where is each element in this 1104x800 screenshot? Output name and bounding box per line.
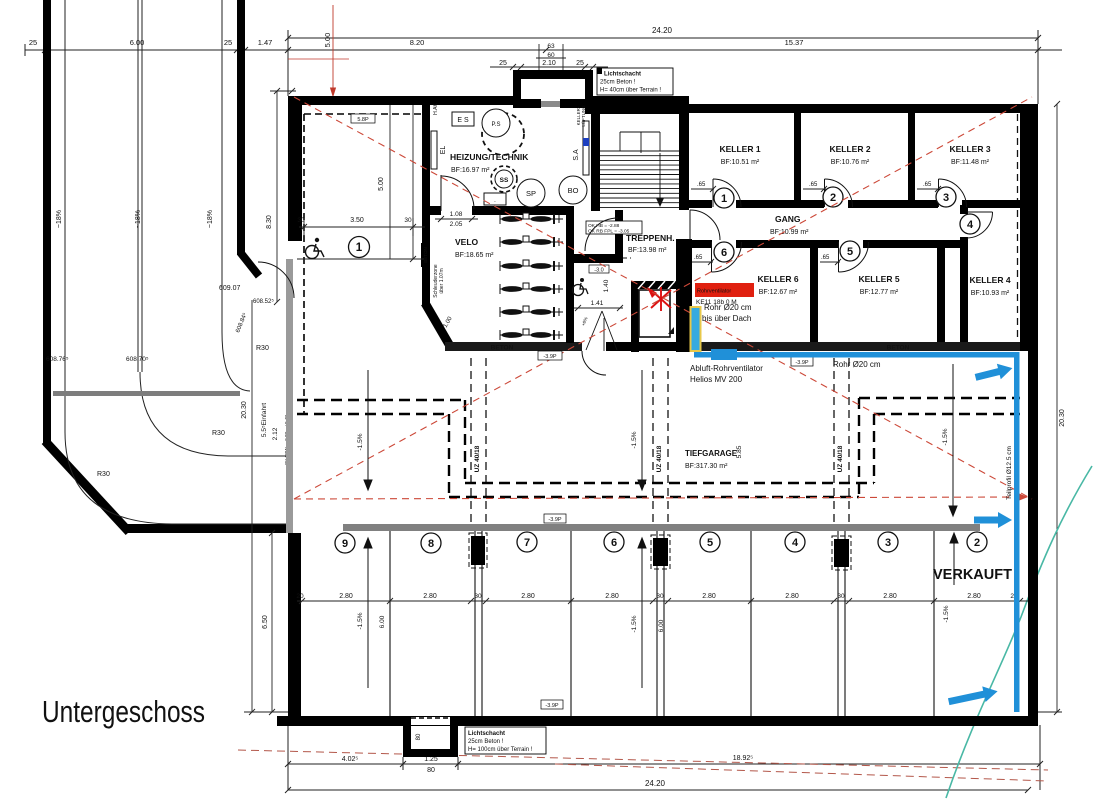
svg-text:-1.5%: -1.5% bbox=[631, 615, 638, 632]
svg-text:BF:317.30 m²: BF:317.30 m² bbox=[685, 463, 728, 470]
svg-text:4: 4 bbox=[792, 537, 799, 549]
svg-text:UZ 40/18: UZ 40/18 bbox=[656, 445, 663, 472]
svg-text:KELLER 2: KELLER 2 bbox=[829, 144, 870, 154]
svg-text:BF:10.99 m²: BF:10.99 m² bbox=[770, 229, 809, 236]
svg-text:-3.9P: -3.9P bbox=[795, 360, 808, 366]
svg-text:-1.5%: -1.5% bbox=[357, 612, 364, 629]
svg-text:BF:12.67 m²: BF:12.67 m² bbox=[759, 289, 798, 296]
svg-text:KELLER 6: KELLER 6 bbox=[757, 274, 798, 284]
svg-text:KELLER 3: KELLER 3 bbox=[949, 144, 990, 154]
svg-text:2.80: 2.80 bbox=[423, 593, 437, 600]
svg-text:25: 25 bbox=[576, 60, 584, 67]
svg-text:R30: R30 bbox=[212, 430, 225, 437]
svg-text:-3.9P: -3.9P bbox=[545, 703, 558, 709]
svg-text:20: 20 bbox=[296, 593, 304, 600]
svg-text:H.AK: H.AK bbox=[433, 103, 439, 115]
svg-text:.65: .65 bbox=[697, 182, 706, 188]
svg-text:OK RB FPL = -3.05: OK RB FPL = -3.05 bbox=[588, 229, 630, 235]
svg-text:5.00: 5.00 bbox=[378, 177, 385, 191]
svg-text:VELO: VELO bbox=[455, 237, 479, 247]
svg-text:Lichtschacht: Lichtschacht bbox=[468, 731, 505, 737]
svg-text:6.00: 6.00 bbox=[658, 619, 665, 632]
svg-text:8: 8 bbox=[428, 538, 434, 550]
svg-text:5: 5 bbox=[847, 246, 853, 258]
svg-text:2.05: 2.05 bbox=[450, 221, 463, 228]
svg-text:25: 25 bbox=[29, 38, 37, 47]
svg-text:BF:11.48 m²: BF:11.48 m² bbox=[951, 159, 990, 166]
svg-text:Teilprofil Ø12.5 cm: Teilprofil Ø12.5 cm bbox=[1006, 446, 1013, 500]
svg-text:3.50: 3.50 bbox=[350, 217, 364, 224]
svg-text:BF:10.76 m²: BF:10.76 m² bbox=[831, 159, 870, 166]
svg-text:BETON: BETON bbox=[887, 345, 910, 352]
svg-text:BF:10.93 m²: BF:10.93 m² bbox=[971, 290, 1010, 297]
svg-text:1.41: 1.41 bbox=[591, 300, 604, 307]
svg-text:~18%: ~18% bbox=[135, 210, 142, 228]
svg-text:5.5⁵Einfahrt: 5.5⁵Einfahrt bbox=[261, 403, 268, 437]
svg-text:609.07: 609.07 bbox=[219, 285, 241, 292]
svg-text:BETON: BETON bbox=[491, 345, 514, 352]
svg-text:2.80: 2.80 bbox=[883, 593, 897, 600]
svg-text:24.20: 24.20 bbox=[652, 26, 673, 35]
svg-text:60: 60 bbox=[547, 52, 555, 59]
svg-text:3: 3 bbox=[943, 192, 949, 204]
svg-text:H= 100cm über Terrain !: H= 100cm über Terrain ! bbox=[468, 747, 533, 753]
svg-text:1.08: 1.08 bbox=[450, 211, 463, 218]
svg-text:4: 4 bbox=[967, 219, 974, 231]
svg-text:-1.5%: -1.5% bbox=[943, 605, 950, 622]
svg-text:2.80: 2.80 bbox=[967, 593, 981, 600]
svg-text:-1.5%: -1.5% bbox=[942, 428, 949, 445]
svg-text:30: 30 bbox=[297, 217, 305, 224]
svg-text:2: 2 bbox=[830, 192, 836, 204]
svg-text:LÜFTUNG: LÜFTUNG bbox=[580, 105, 586, 127]
svg-text:24.20: 24.20 bbox=[645, 779, 666, 788]
svg-text:.65: .65 bbox=[809, 182, 818, 188]
svg-text:bis über Dach: bis über Dach bbox=[702, 314, 751, 323]
svg-text:VERKAUFT: VERKAUFT bbox=[933, 567, 1012, 583]
svg-text:HEIZUNG/TECHNIK: HEIZUNG/TECHNIK bbox=[450, 152, 529, 162]
svg-text:BF:18.65 m²: BF:18.65 m² bbox=[455, 252, 494, 259]
svg-text:7: 7 bbox=[524, 537, 530, 549]
svg-text:5.85: 5.85 bbox=[736, 445, 743, 458]
svg-text:Untergeschoss: Untergeschoss bbox=[42, 694, 205, 729]
svg-text:BF:13.98 m²: BF:13.98 m² bbox=[628, 247, 667, 254]
svg-text:-3.9P: -3.9P bbox=[548, 517, 561, 523]
svg-text:-3.9P: -3.9P bbox=[543, 354, 556, 360]
svg-text:4.02⁵: 4.02⁵ bbox=[342, 756, 359, 763]
svg-text:63: 63 bbox=[547, 43, 555, 50]
svg-text:25cm Beton !: 25cm Beton ! bbox=[600, 80, 636, 86]
svg-text:80: 80 bbox=[427, 767, 435, 774]
svg-text:6.50: 6.50 bbox=[262, 615, 269, 629]
svg-text:25: 25 bbox=[499, 60, 507, 67]
svg-text:6: 6 bbox=[611, 537, 617, 549]
svg-text:Rohr Ø20 cm: Rohr Ø20 cm bbox=[704, 303, 752, 312]
svg-text:OK HB = -2.88: OK HB = -2.88 bbox=[588, 223, 620, 229]
svg-text:~18%: ~18% bbox=[207, 210, 214, 228]
svg-text:25cm Beton !: 25cm Beton ! bbox=[468, 739, 504, 745]
svg-text:S.A: S.A bbox=[573, 149, 580, 161]
svg-text:6.00: 6.00 bbox=[379, 615, 386, 628]
svg-text:20.30: 20.30 bbox=[241, 401, 248, 419]
svg-text:Abluft-Rohrventilator: Abluft-Rohrventilator bbox=[690, 364, 763, 373]
svg-text:~18%: ~18% bbox=[56, 210, 63, 228]
svg-text:1.25: 1.25 bbox=[424, 756, 438, 763]
svg-text:30: 30 bbox=[656, 593, 664, 600]
svg-text:1: 1 bbox=[356, 242, 363, 254]
svg-text:GANG: GANG bbox=[775, 214, 801, 224]
svg-text:Rohr Ø20 cm: Rohr Ø20 cm bbox=[833, 360, 881, 369]
svg-text:2: 2 bbox=[974, 537, 980, 549]
svg-text:KELLER 5: KELLER 5 bbox=[858, 274, 899, 284]
svg-text:2.10: 2.10 bbox=[542, 60, 556, 67]
svg-text:2.80: 2.80 bbox=[521, 593, 535, 600]
svg-text:2.80: 2.80 bbox=[605, 593, 619, 600]
svg-text:5.00: 5.00 bbox=[323, 33, 332, 48]
svg-text:1.40: 1.40 bbox=[603, 279, 610, 292]
svg-text:5.8P: 5.8P bbox=[357, 117, 369, 123]
svg-text:KELLER 4: KELLER 4 bbox=[969, 275, 1010, 285]
svg-text:608.76⁵: 608.76⁵ bbox=[46, 356, 69, 363]
svg-text:R30: R30 bbox=[256, 345, 269, 352]
svg-text:TIEFGARAGE: TIEFGARAGE bbox=[685, 449, 738, 458]
svg-text:Lichtschacht: Lichtschacht bbox=[604, 72, 641, 78]
svg-text:2.80: 2.80 bbox=[339, 593, 353, 600]
svg-text:TREPPENH.: TREPPENH. bbox=[626, 233, 675, 243]
svg-text:über 1.07m: über 1.07m bbox=[439, 268, 445, 293]
svg-text:6: 6 bbox=[721, 247, 727, 259]
svg-text:30: 30 bbox=[474, 593, 482, 600]
svg-text:1.47: 1.47 bbox=[258, 38, 273, 47]
svg-text:8.20: 8.20 bbox=[410, 38, 425, 47]
svg-text:8.30: 8.30 bbox=[266, 215, 273, 229]
svg-text:-1.5%: -1.5% bbox=[357, 433, 364, 450]
svg-text:Helios MV 200: Helios MV 200 bbox=[690, 375, 743, 384]
svg-text:5: 5 bbox=[707, 537, 713, 549]
svg-text:2.80: 2.80 bbox=[785, 593, 799, 600]
svg-text:BF:16.97 m²: BF:16.97 m² bbox=[451, 167, 490, 174]
svg-text:.65: .65 bbox=[923, 182, 932, 188]
svg-text:EL: EL bbox=[440, 146, 447, 155]
svg-text:BETON: BETON bbox=[423, 247, 428, 262]
svg-text:BO: BO bbox=[568, 186, 579, 195]
svg-text:.65: .65 bbox=[821, 255, 830, 261]
svg-text:-3.0: -3.0 bbox=[594, 268, 603, 274]
svg-text:UZ 40/18: UZ 40/18 bbox=[837, 445, 844, 472]
svg-text:UZ 40/18: UZ 40/18 bbox=[474, 445, 481, 472]
svg-text:608.52⁵: 608.52⁵ bbox=[253, 298, 274, 305]
svg-text:H= 40cm über Terrain !: H= 40cm über Terrain ! bbox=[600, 88, 661, 94]
svg-text:SP: SP bbox=[526, 189, 536, 198]
svg-text:1: 1 bbox=[721, 193, 727, 205]
svg-text:9: 9 bbox=[342, 538, 348, 550]
svg-text:30: 30 bbox=[837, 593, 845, 600]
svg-text:E S: E S bbox=[457, 117, 469, 124]
svg-text:30: 30 bbox=[404, 217, 412, 224]
svg-text:18.92⁵: 18.92⁵ bbox=[733, 755, 754, 762]
svg-text:2.12: 2.12 bbox=[272, 427, 279, 440]
svg-text:80: 80 bbox=[416, 733, 422, 740]
svg-text:SS: SS bbox=[500, 177, 509, 184]
svg-text:R30: R30 bbox=[97, 471, 110, 478]
svg-text:KELLER 1: KELLER 1 bbox=[719, 144, 760, 154]
svg-text:3: 3 bbox=[885, 537, 891, 549]
svg-text:15.37: 15.37 bbox=[785, 38, 804, 47]
svg-text:608.70⁵: 608.70⁵ bbox=[126, 356, 149, 363]
svg-text:BF:10.51 m²: BF:10.51 m² bbox=[721, 159, 760, 166]
svg-text:20.30: 20.30 bbox=[1059, 409, 1066, 427]
svg-text:P.S: P.S bbox=[492, 122, 501, 128]
svg-text:.65: .65 bbox=[694, 255, 703, 261]
svg-text:2.80: 2.80 bbox=[702, 593, 716, 600]
svg-text:Rohrventilator: Rohrventilator bbox=[697, 289, 731, 295]
svg-text:BF:12.77 m²: BF:12.77 m² bbox=[860, 289, 899, 296]
svg-text:25: 25 bbox=[224, 38, 232, 47]
svg-text:-1.5%: -1.5% bbox=[631, 431, 638, 448]
